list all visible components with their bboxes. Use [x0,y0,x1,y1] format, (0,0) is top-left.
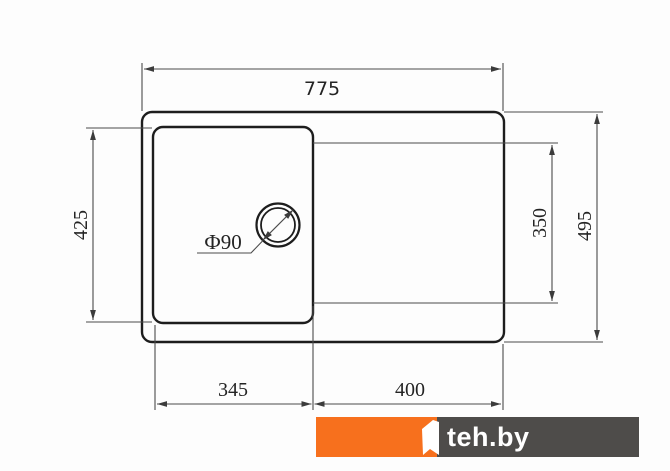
sink-outer-outline [142,112,504,342]
drain-diameter-line [263,210,293,240]
dimension-bowl-width: 345 [218,379,248,401]
watermark-gray-block: teh.by [437,417,639,457]
drainboard-edge-lines [313,143,558,303]
dimension-total-width: 775 [304,78,340,100]
sink-dimension-drawing: 775 425 350 495 345 400 Ф90 teh.by [0,0,670,471]
technical-drawing-svg: 775 425 350 495 345 400 Ф90 [0,0,670,471]
dimension-total-height: 495 [574,211,596,241]
dimension-drainboard-width: 400 [395,379,425,401]
one-ribbon-icon [420,419,442,456]
sink-bowl-outline [153,127,313,323]
watermark-brand-text: teh.by [437,417,530,457]
dimension-lines [93,69,597,404]
drain-diameter-label: Ф90 [204,230,242,254]
dimension-bowl-height: 425 [70,210,92,240]
extension-lines [86,63,603,410]
sink-outline-group [142,112,504,342]
dimension-drainboard-height: 350 [529,208,551,238]
teh-by-watermark: teh.by [316,417,639,457]
watermark-orange-block [316,417,437,457]
